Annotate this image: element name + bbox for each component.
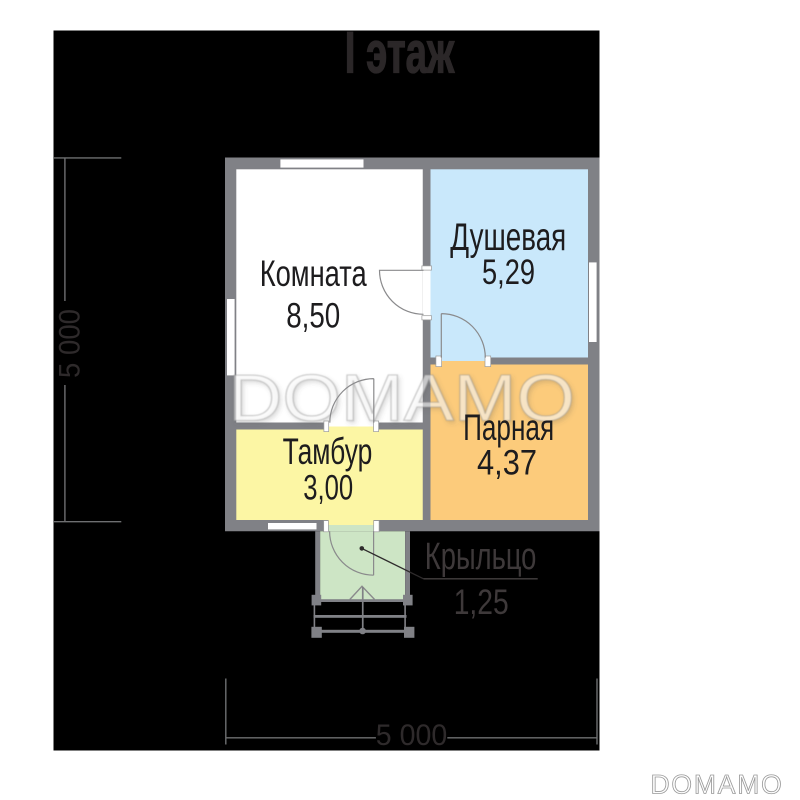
svg-text:DOMAMO: DOMAMO xyxy=(651,770,784,800)
svg-text:4,37: 4,37 xyxy=(477,443,537,483)
svg-text:Комната: Комната xyxy=(260,253,367,294)
svg-text:5,29: 5,29 xyxy=(482,252,535,292)
svg-text:1,25: 1,25 xyxy=(454,582,509,622)
svg-text:Тамбур: Тамбур xyxy=(283,431,373,472)
svg-text:I этаж: I этаж xyxy=(345,20,455,85)
svg-text:3,00: 3,00 xyxy=(303,468,353,508)
svg-text:5 000: 5 000 xyxy=(376,719,447,752)
svg-text:5 000: 5 000 xyxy=(54,309,87,378)
svg-text:8,50: 8,50 xyxy=(286,296,340,336)
svg-text:Крыльцо: Крыльцо xyxy=(425,536,537,578)
